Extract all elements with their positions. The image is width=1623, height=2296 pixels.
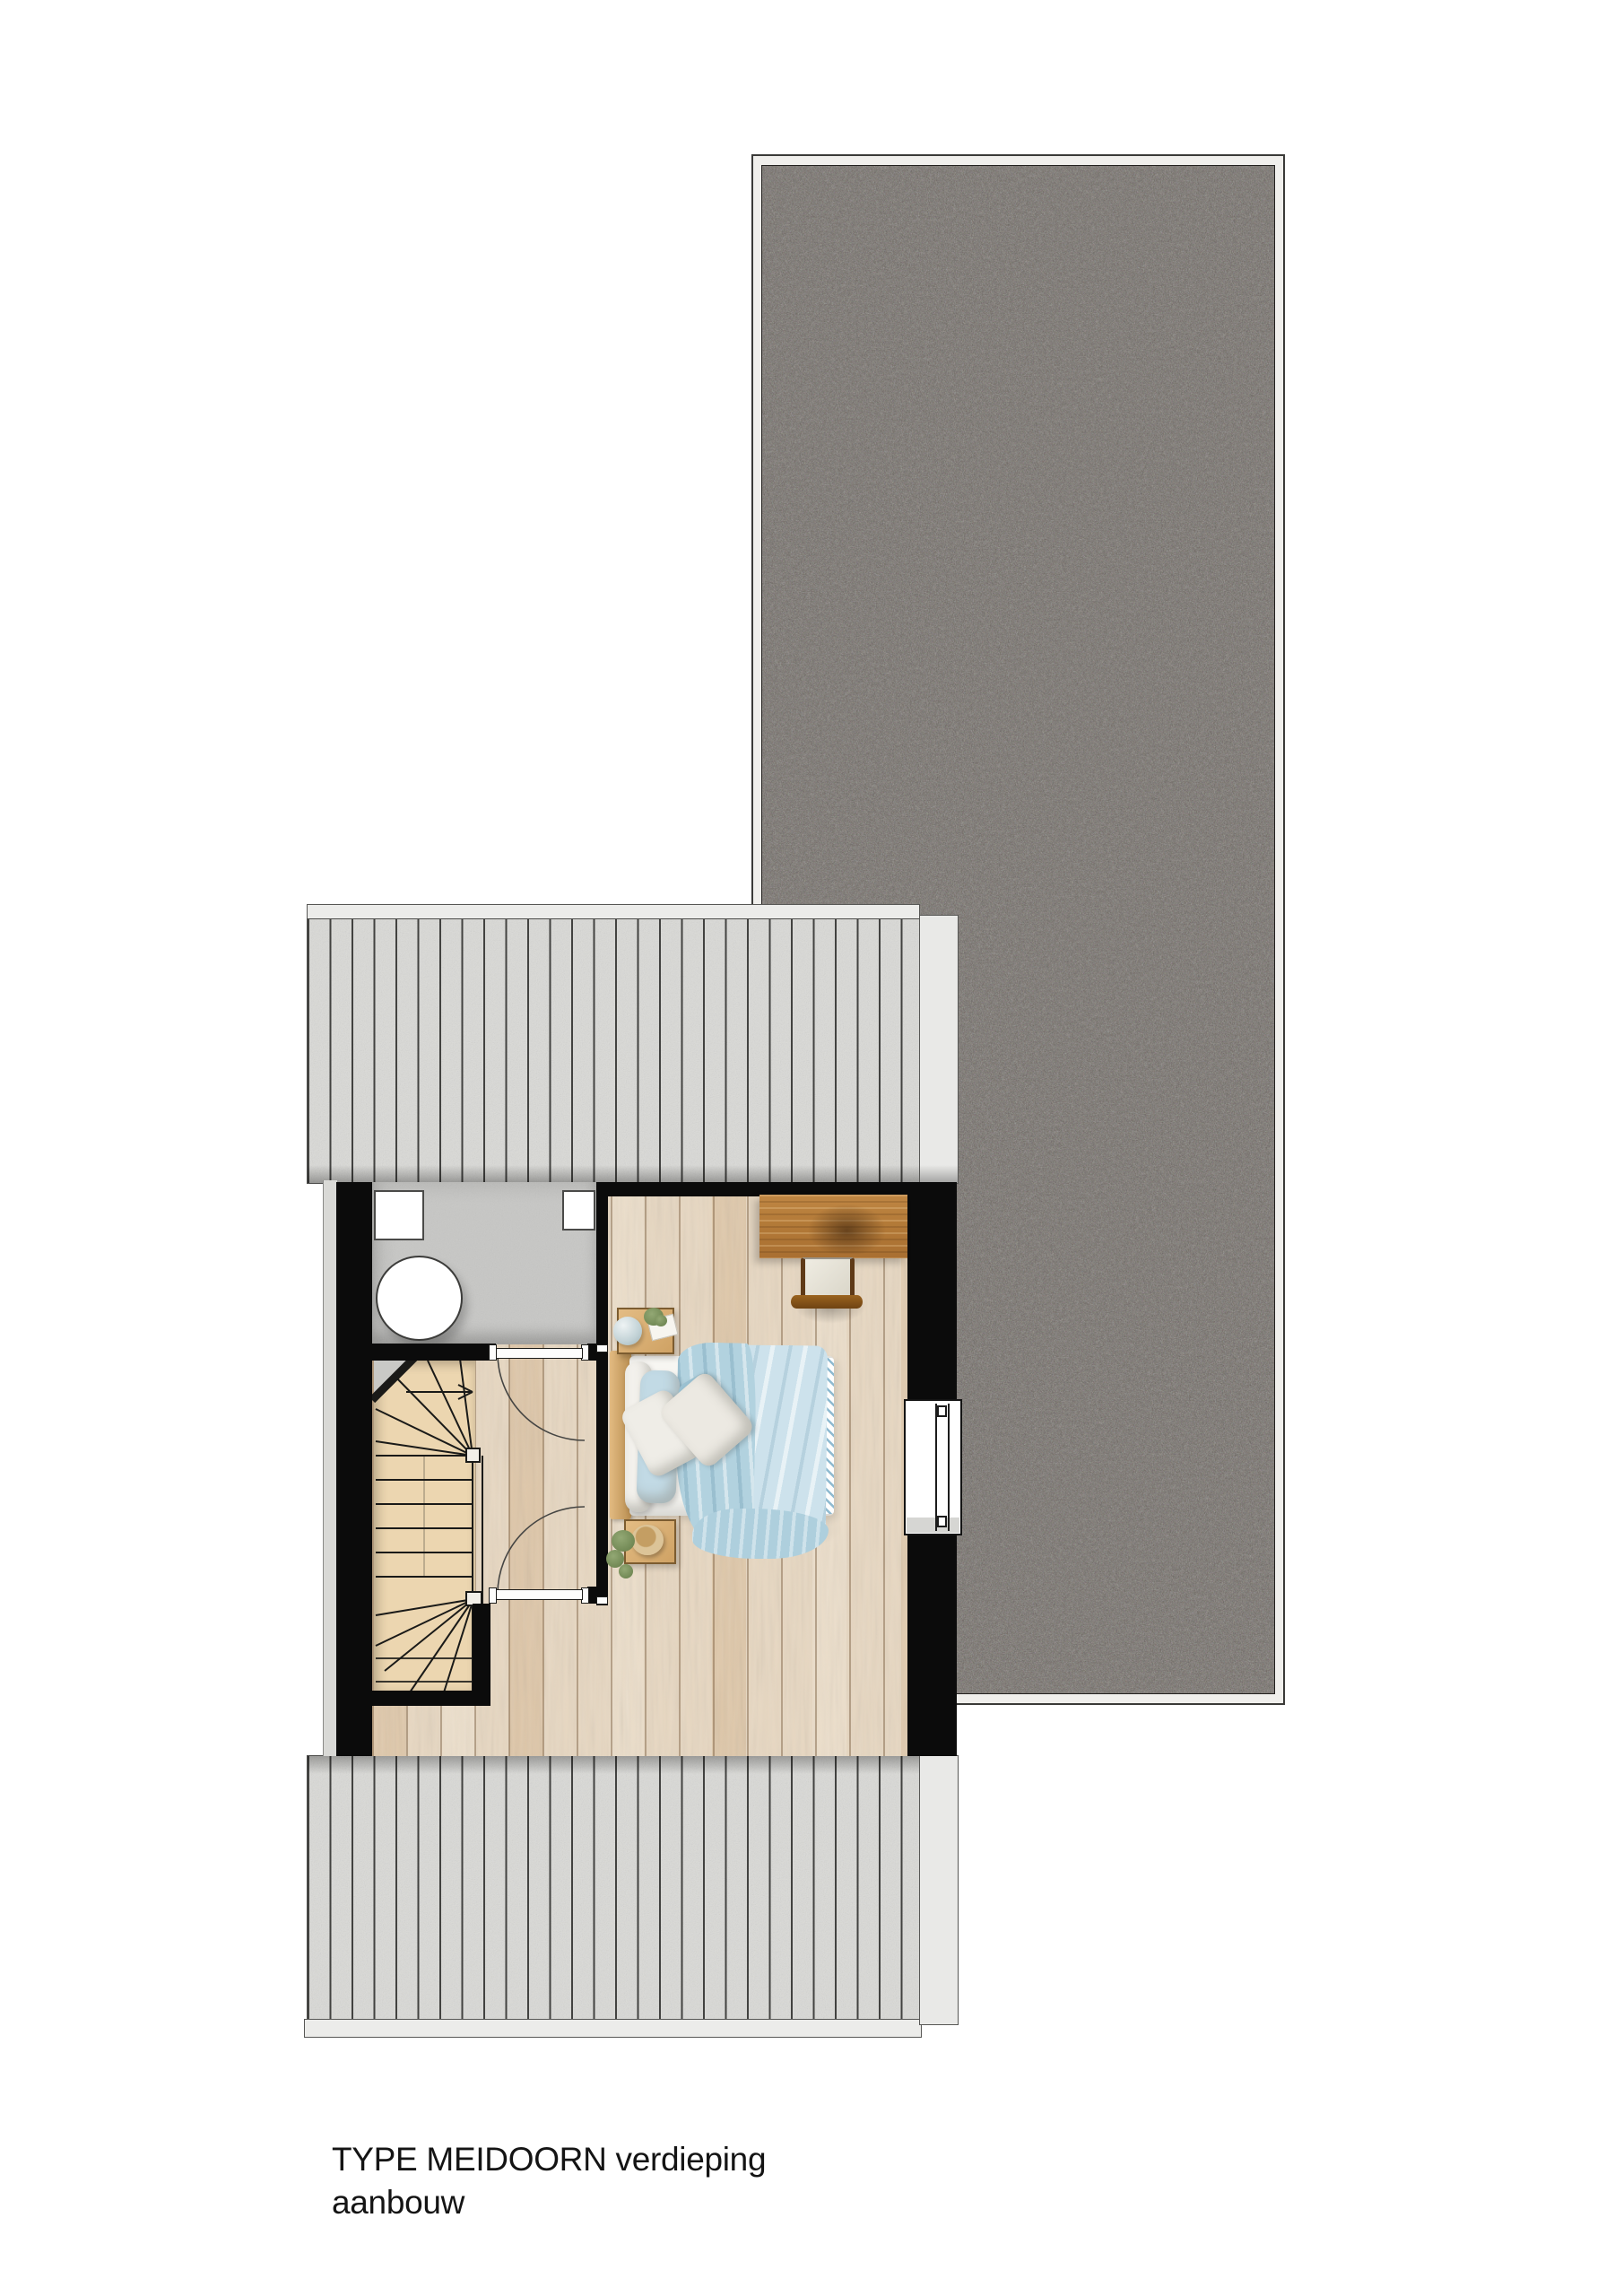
roof-north-edge-panel [919, 915, 959, 1184]
roof-north-shadow [308, 1165, 919, 1183]
jamb-wall-end-bottom [596, 1596, 608, 1605]
window-hinge-top [937, 1405, 947, 1417]
roof-south-edge-panel [919, 1755, 959, 2025]
wall-bathroom-south [372, 1344, 496, 1361]
wall-west [336, 1182, 372, 1756]
window-east [904, 1399, 962, 1535]
floorplan-page: TYPE MEIDOORN verdieping aanbouw [0, 0, 1623, 2296]
straw-hat [631, 1525, 664, 1555]
wall-east-upper [907, 1182, 957, 1402]
caption-line-1: TYPE MEIDOORN verdieping [332, 2138, 906, 2181]
toilet [376, 1256, 463, 1341]
desk-chair-backrest [791, 1295, 863, 1309]
window-frame-line-2 [948, 1404, 950, 1531]
glass-vase [613, 1317, 642, 1345]
jamb-wall-end-top [596, 1344, 608, 1352]
window-frame-line-1 [935, 1404, 937, 1531]
roof-eave-left-strip [323, 1180, 337, 1756]
desk [759, 1195, 907, 1258]
plant-sprig-north-2 [655, 1315, 667, 1326]
desk-chair-seat [801, 1257, 855, 1300]
wall-east-lower [907, 1535, 957, 1756]
roof-south-shadow [308, 1756, 919, 1774]
roof-south-eaves-cap [304, 2019, 922, 2038]
roof-south-field [307, 1755, 920, 2021]
bathroom-door-leaf [496, 1348, 583, 1359]
caption: TYPE MEIDOORN verdieping aanbouw [332, 2138, 906, 2224]
roof-south-seams [308, 1756, 919, 2020]
wall-landing-bedroom [596, 1182, 608, 1605]
plant-south-3 [619, 1564, 633, 1578]
window-sill [907, 1518, 959, 1533]
window-hinge-bottom [937, 1516, 947, 1527]
newel-post-top [466, 1448, 480, 1462]
desk-knot [804, 1202, 890, 1254]
roof-north-edge-shadow [920, 1165, 958, 1183]
landing-door-leaf [496, 1589, 583, 1600]
bathroom-unit-right [562, 1190, 595, 1231]
plant-south [612, 1530, 635, 1552]
wall-stairwell-east [473, 1604, 490, 1693]
roof-north-seams [308, 919, 919, 1183]
bathroom-unit-left [374, 1190, 424, 1240]
duvet-drape-foot [692, 1509, 829, 1559]
caption-line-2: aanbouw [332, 2181, 906, 2224]
roof-north-field [307, 918, 920, 1184]
